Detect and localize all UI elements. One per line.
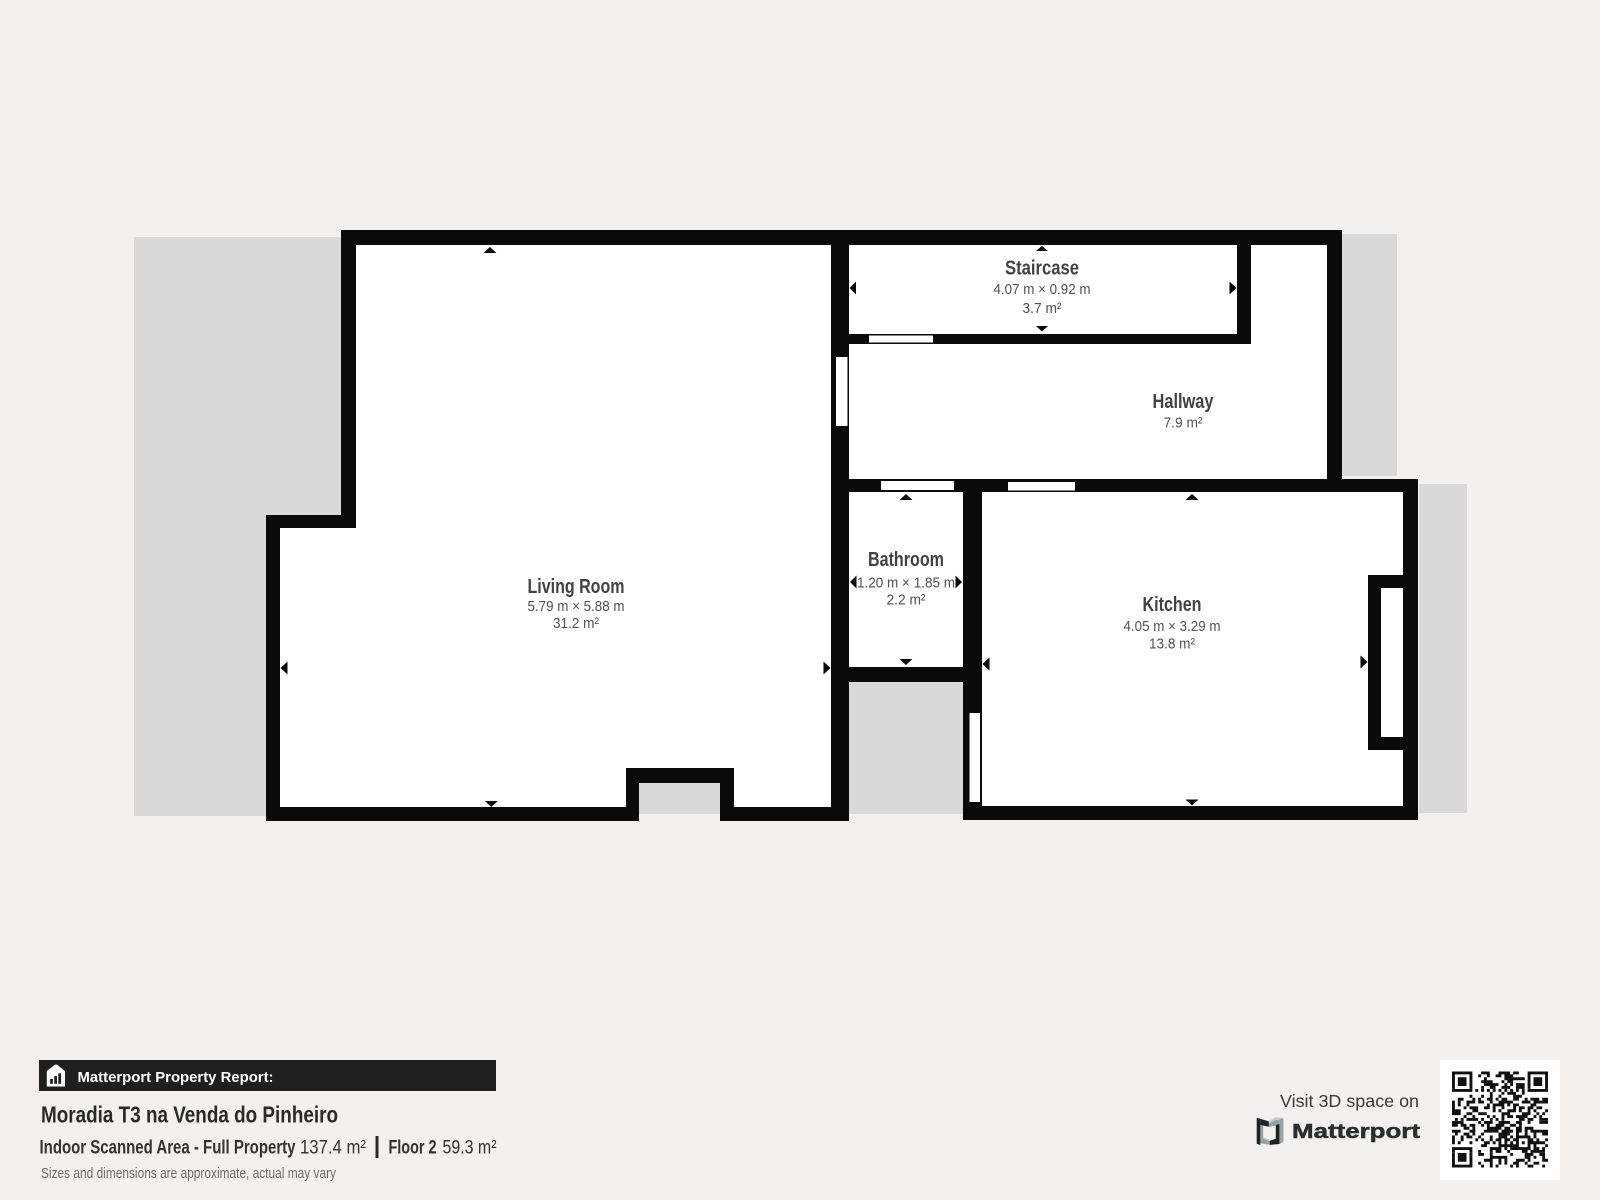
svg-text:137.4 m²: 137.4 m² — [300, 1138, 366, 1159]
svg-text:59.3 m²: 59.3 m² — [443, 1138, 497, 1159]
svg-text:Bathroom: Bathroom — [868, 549, 944, 571]
svg-text:Sizes and dimensions are appro: Sizes and dimensions are approximate, ac… — [41, 1165, 336, 1182]
svg-text:Visit 3D space on: Visit 3D space on — [1280, 1091, 1419, 1111]
svg-text:Kitchen: Kitchen — [1143, 594, 1202, 616]
svg-text:5.79 m × 5.88 m: 5.79 m × 5.88 m — [528, 598, 625, 615]
svg-text:4.05 m × 3.29 m: 4.05 m × 3.29 m — [1124, 618, 1221, 635]
svg-text:Floor 2: Floor 2 — [389, 1138, 437, 1159]
svg-text:Staircase: Staircase — [1005, 258, 1079, 280]
svg-text:Hallway: Hallway — [1153, 391, 1215, 413]
svg-text:2.2 m²: 2.2 m² — [887, 592, 926, 609]
svg-text:13.8 m²: 13.8 m² — [1149, 636, 1195, 653]
svg-text:Indoor Scanned Area - Full Pro: Indoor Scanned Area - Full Property — [40, 1138, 296, 1159]
svg-text:3.7 m²: 3.7 m² — [1023, 300, 1062, 317]
svg-text:7.9 m²: 7.9 m² — [1164, 415, 1203, 432]
svg-text:Matterport Property Report:: Matterport Property Report: — [78, 1070, 274, 1086]
svg-text:Matterport: Matterport — [1292, 1121, 1420, 1143]
svg-text:31.2 m²: 31.2 m² — [553, 615, 599, 632]
svg-text:4.07 m × 0.92 m: 4.07 m × 0.92 m — [994, 281, 1091, 298]
svg-text:1.20 m × 1.85 m: 1.20 m × 1.85 m — [857, 575, 955, 592]
svg-text:Moradia T3 na Venda do Pinheir: Moradia T3 na Venda do Pinheiro — [41, 1102, 338, 1128]
svg-text:Living Room: Living Room — [528, 576, 625, 598]
